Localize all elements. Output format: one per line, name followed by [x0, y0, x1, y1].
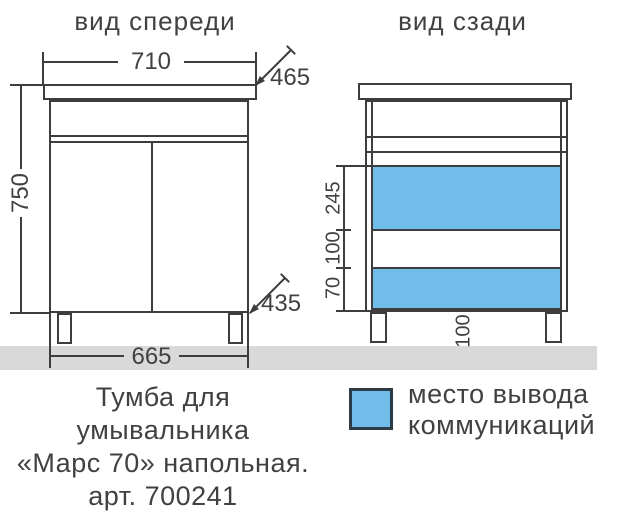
- dim-750-extension-bottom: [10, 312, 49, 314]
- dim-100-label: 100: [323, 231, 346, 264]
- caption-line2: умывальника: [8, 414, 318, 447]
- front-rail-line-1: [51, 135, 247, 137]
- communication-zone-lower: [373, 267, 560, 310]
- legend-label: место вывода коммуникаций: [408, 379, 595, 441]
- dim-665-line-left: [50, 355, 124, 357]
- front-leg-left: [57, 313, 72, 344]
- dim-leg-100-label: 100: [453, 314, 476, 347]
- front-rail-line-2: [51, 141, 247, 143]
- back-view-title: вид сзади: [390, 6, 535, 37]
- front-cabinet-body: [49, 100, 249, 313]
- legend-communication-swatch: [349, 388, 393, 430]
- technical-drawing-canvas: вид спереди 710 465 750 665 435: [0, 0, 618, 513]
- dim-465-label: 465: [270, 64, 310, 92]
- front-door-split-line: [151, 142, 153, 312]
- dim-710-extension-left: [42, 52, 44, 85]
- dim-70-label: 70: [323, 277, 346, 299]
- back-dim-extension-top: [336, 165, 373, 167]
- dim-750-label: 750: [6, 169, 36, 217]
- dim-245-label: 245: [323, 181, 346, 214]
- back-leg-right: [545, 312, 562, 343]
- dim-665-label: 665: [124, 343, 179, 371]
- product-caption: Тумба для умывальника «Марс 70» напольна…: [8, 381, 318, 513]
- dim-665-extension-left: [49, 313, 51, 368]
- floor-strip: [0, 346, 597, 370]
- legend-label-line2: коммуникаций: [408, 410, 595, 441]
- caption-line3: «Марс 70» напольная.: [8, 447, 318, 480]
- caption-line1: Тумба для: [8, 381, 318, 414]
- dim-710-label: 710: [118, 48, 184, 76]
- caption-line4: арт. 700241: [8, 480, 318, 513]
- back-rail-line-2: [367, 151, 566, 153]
- front-view-title: вид спереди: [60, 6, 250, 37]
- dim-750-extension-top: [10, 84, 43, 86]
- back-rail-line-1: [367, 136, 566, 138]
- dim-435-label: 435: [261, 290, 301, 318]
- front-countertop: [43, 84, 257, 100]
- back-countertop: [358, 83, 572, 100]
- back-inner-edge-right: [560, 100, 562, 312]
- legend-label-line1: место вывода: [408, 379, 595, 410]
- back-dim-tick-2: [336, 267, 351, 269]
- dim-665-line-right: [179, 355, 248, 357]
- back-dim-extension-bottom: [336, 310, 366, 312]
- back-leg-left: [370, 312, 387, 343]
- communication-zone-upper: [373, 165, 560, 231]
